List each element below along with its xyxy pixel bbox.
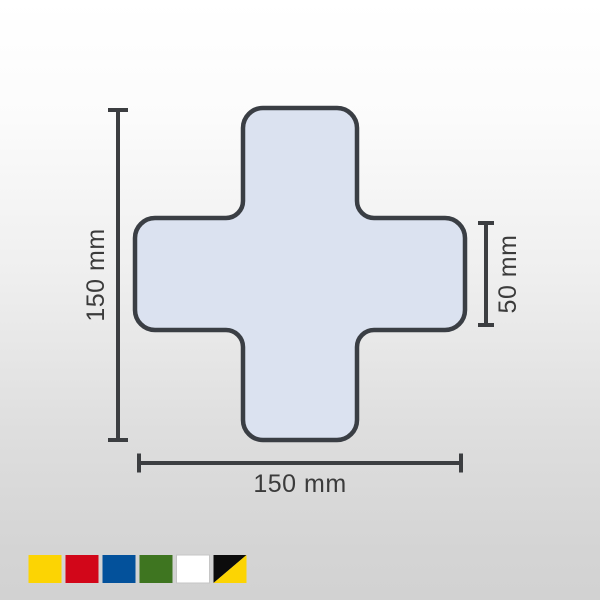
dimension-label-height: 150 mm	[81, 175, 111, 375]
dimension-line-height	[108, 110, 128, 440]
swatch-blue	[103, 555, 136, 583]
swatch-red	[66, 555, 99, 583]
swatch-white-fill	[177, 555, 210, 583]
dimension-label-arm-width: 50 mm	[493, 174, 523, 374]
swatch-white	[177, 555, 210, 583]
dimension-label-width: 150 mm	[200, 469, 400, 499]
swatch-green	[140, 555, 173, 583]
color-swatch-row	[28, 554, 250, 585]
product-dimension-diagram: 150 mm 50 mm 150 mm	[0, 0, 600, 600]
cross-shape-outline	[135, 108, 465, 440]
cross-shape	[135, 108, 465, 440]
dimension-line-arm	[478, 223, 494, 325]
swatch-yellow	[29, 555, 62, 583]
swatch-black-yellow	[214, 555, 247, 583]
